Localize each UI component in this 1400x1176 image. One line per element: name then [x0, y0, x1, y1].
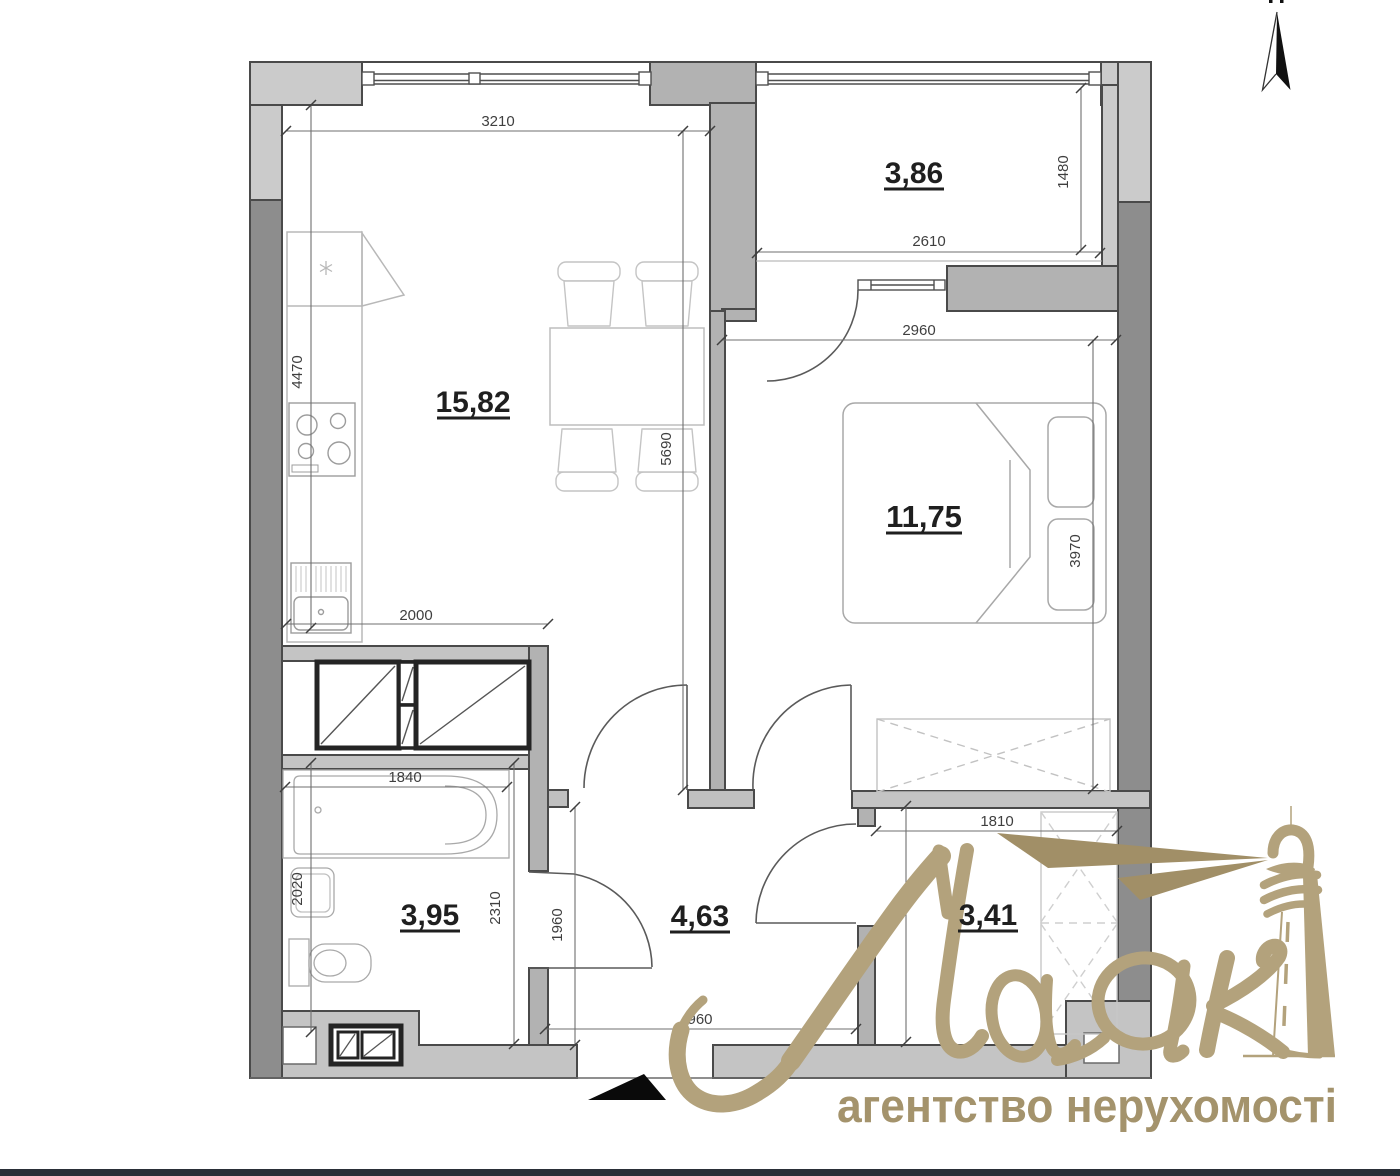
svg-text:3,41: 3,41 [959, 899, 1017, 932]
svg-text:агентство нерухомості: агентство нерухомості [837, 1079, 1337, 1132]
svg-text:4470: 4470 [289, 355, 306, 388]
svg-text:2020: 2020 [289, 872, 306, 905]
svg-text:3210: 3210 [481, 113, 514, 130]
svg-text:5690: 5690 [658, 432, 675, 465]
svg-text:3,95: 3,95 [401, 899, 459, 932]
svg-text:1840: 1840 [388, 769, 421, 786]
svg-text:1960: 1960 [549, 908, 566, 941]
svg-text:15,82: 15,82 [435, 386, 510, 419]
svg-text:1480: 1480 [1055, 155, 1072, 188]
svg-text:11,75: 11,75 [886, 499, 962, 534]
svg-text:2960: 2960 [902, 322, 935, 339]
svg-text:1810: 1810 [980, 813, 1013, 830]
svg-text:2000: 2000 [399, 607, 432, 624]
svg-text:3,86: 3,86 [885, 157, 943, 190]
svg-text:2310: 2310 [487, 891, 504, 924]
svg-text:3970: 3970 [1067, 534, 1084, 567]
svg-text:4,63: 4,63 [671, 900, 729, 933]
svg-text:2610: 2610 [912, 233, 945, 250]
